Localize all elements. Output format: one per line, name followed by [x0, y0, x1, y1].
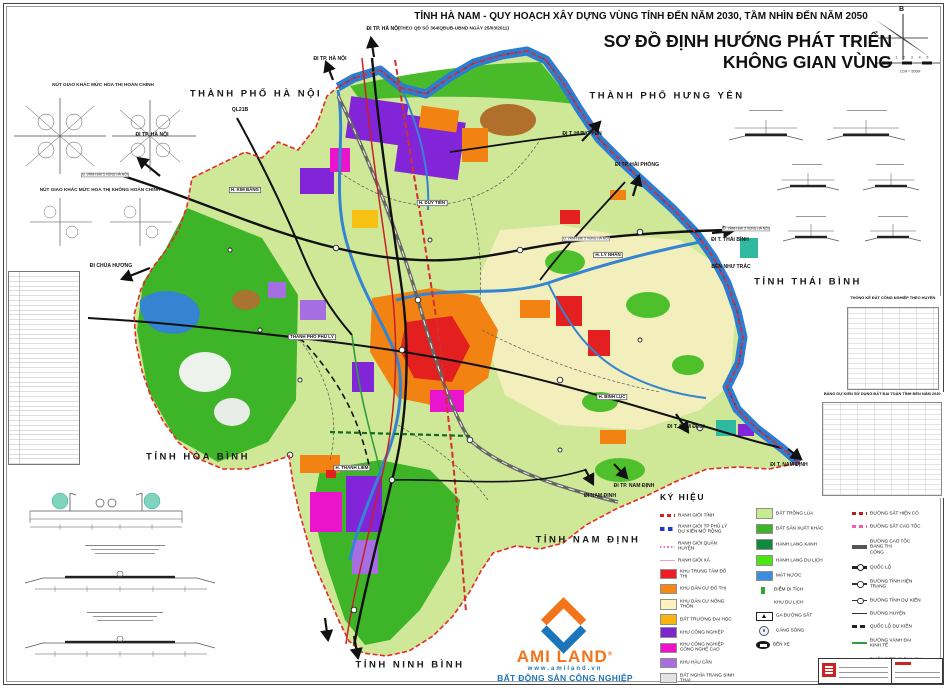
legend-item: RANH GIỚI XÃ — [660, 557, 756, 564]
legend-swatch-thin — [852, 613, 867, 614]
legend-item: GA ĐƯỜNG SẮT — [756, 612, 854, 621]
direction-label: ĐI T. THÁI BÌNH — [711, 237, 749, 242]
scale-tick: 0 — [888, 56, 890, 60]
legend-label: QUỐC LỘ DỰ KIẾN — [870, 624, 923, 629]
legend-item: ĐƯỜNG SẮT HIỆN CÓ — [852, 510, 944, 517]
direction-label: ĐI NAM ĐỊNH — [584, 493, 616, 498]
stamp-logo-icon — [822, 663, 836, 677]
legend-item: HÀNH LANG DU LỊCH — [756, 555, 854, 566]
map-name-line1: SƠ ĐỒ ĐỊNH HƯỚNG PHÁT TRIỂN — [500, 31, 892, 52]
legend-label: CẢNG SÔNG — [776, 628, 832, 633]
legend-column-zones: RANH GIỚI TỈNHRANH GIỚI TP PHỦ LÝ DỰ KIẾ… — [660, 512, 756, 688]
scale-tick: 5 — [926, 56, 928, 60]
legend-item: QUỐC LỘ DỰ KIẾN — [852, 623, 944, 630]
legend-item: ĐIỂM DI TÍCH — [756, 586, 854, 593]
legend-swatch-fill — [660, 584, 677, 595]
legend-swatch-fill — [756, 539, 773, 550]
title-stamp-block — [818, 658, 943, 684]
legend-label: ĐƯỜNG TỈNH HIỆN TRẠNG — [870, 579, 923, 590]
legend-label: ĐƯỜNG TỈNH DỰ KIẾN — [870, 598, 923, 603]
legend-label: KHU CÔNG NGHIỆP — [680, 630, 735, 635]
legend-label: KHU DÂN CƯ ĐÔ THỊ — [680, 586, 735, 591]
direction-label: BẾN NHƯ TRÁC — [711, 264, 750, 269]
stamp-text-lines — [839, 664, 888, 678]
legend-label: BẾN XE — [773, 642, 831, 647]
legend-item: ĐƯỜNG TỈNH DỰ KIẾN — [852, 597, 944, 604]
legend-item: RANH GIỚI TỈNH — [660, 512, 756, 519]
legend-label: ĐẤT TRỒNG LÚA — [776, 511, 832, 516]
stamp-left-cell — [819, 659, 892, 683]
legend-item: ĐẤT TRƯỜNG ĐẠI HỌC — [660, 614, 756, 625]
legend-label: KHU CÔNG NGHIỆP CÔNG NGHỆ CAO — [680, 642, 735, 653]
direction-label: ĐI T. HƯNG YÊN — [562, 131, 601, 136]
direction-label: ĐI TP. HÀ NỘI — [366, 26, 399, 31]
legend-label: ĐẤT TRƯỜNG ĐẠI HỌC — [680, 617, 735, 622]
legend-swatch-fill — [660, 569, 677, 580]
scale-tick: 3 — [911, 56, 913, 60]
legend-swatch-linecircle — [852, 566, 867, 569]
legend-swatch-dash — [852, 525, 867, 528]
legend-swatch-dash — [852, 512, 867, 515]
district-label: H. BÌNH LỤC — [597, 394, 628, 400]
legend-item: RANH GIỚI TP PHỦ LÝ DỰ KIẾN MỞ RỘNG — [660, 522, 756, 537]
legend-swatch-fill — [660, 658, 677, 669]
legend-item: KHU TRUNG TÂM ĐÔ THỊ — [660, 567, 756, 582]
legend-swatch-station — [756, 612, 773, 621]
province-label: THÀNH PHỐ HƯNG YÊN — [589, 91, 744, 102]
direction-label: ĐI TP. HÀ NỘI — [135, 132, 168, 137]
road-cross-sections-left — [25, 493, 215, 657]
legend-item: CẢNG SÔNG — [756, 626, 854, 636]
province-label: TỈNH HÒA BÌNH — [146, 452, 250, 463]
legend-swatch-thick — [852, 545, 867, 549]
legend-title: KÝ HIỆU — [660, 492, 944, 502]
legend-item: ĐƯỜNG CAO TỐC ĐANG THI CÔNG — [852, 536, 944, 558]
stamp-red-mark — [895, 662, 911, 665]
legend-swatch-dash — [660, 514, 675, 517]
legend-label: KHU TRUNG TÂM ĐÔ THỊ — [680, 569, 735, 580]
legend-item: RANH GIỚI QUẬN HUYỆN — [660, 539, 756, 554]
legend-label: ĐƯỜNG SẮT HIỆN CÓ — [870, 511, 923, 516]
amiland-tagline: BẤT ĐỘNG SẢN CÔNG NGHIỆP — [472, 673, 658, 683]
legend-swatch-dots — [660, 546, 675, 548]
legend-item: ĐƯỜNG HUYỆN — [852, 610, 944, 617]
landuse-table: BẢNG DỰ KIẾN SỬ DỤNG ĐẤT ĐAI TOÀN TỈNH Đ… — [820, 392, 944, 498]
scale-note: 1CM = 500M — [892, 70, 928, 74]
note-list-table — [8, 271, 80, 465]
legend-swatch-fill — [756, 508, 773, 519]
legend-label: RANH GIỚI XÃ — [678, 558, 734, 563]
legend-swatch-thin — [660, 560, 675, 561]
legend-item: MẶT NƯỚC — [756, 571, 854, 582]
direction-label: ĐI CHÙA HƯƠNG — [90, 263, 132, 268]
legend-item: KHU CÔNG NGHIỆP — [660, 627, 756, 638]
direction-label: QL21B — [232, 107, 248, 112]
legend-swatch-squares — [660, 527, 675, 531]
province-label: TỈNH NINH BÌNH — [356, 660, 465, 671]
district-label: H. KIM BẢNG — [229, 187, 261, 193]
legend-swatch-fill — [756, 524, 773, 535]
registered-mark: ® — [608, 651, 613, 657]
legend-swatch-bus — [756, 641, 770, 650]
legend-item: KHU DÂN CƯ ĐÔ THỊ — [660, 584, 756, 595]
scale-tick: 4 — [919, 56, 921, 60]
legend-column-land: ĐẤT TRỒNG LÚAĐẤT SẢN XUẤT KHÁCHÀNH LANG … — [756, 508, 854, 655]
direction-label: ĐI T. NAM ĐỊNH — [667, 424, 704, 429]
direction-label: ĐI T. NAM ĐỊNH — [770, 462, 807, 467]
legend-item: KHU HẬU CẦN — [660, 658, 756, 669]
stamp-right-cell — [892, 659, 942, 683]
legend-label: ĐƯỜNG CAO TỐC ĐANG THI CÔNG — [870, 539, 923, 555]
map-name-line2: KHÔNG GIAN VÙNG — [500, 52, 892, 73]
interchange-diagram-full — [14, 98, 196, 174]
legend-swatch-none — [756, 602, 771, 603]
legend-item: KHU DU LỊCH — [756, 599, 854, 606]
legend-swatch-fill — [660, 599, 677, 610]
legend-column-roads: ĐƯỜNG SẮT HIỆN CÓĐƯỜNG SẮT CAO TỐCĐƯỜNG … — [852, 510, 944, 682]
legend-swatch-linecircle-thin — [852, 600, 867, 601]
district-label: H. LÝ NHÂN — [593, 252, 622, 258]
legend-item: QUỐC LỘ — [852, 564, 944, 571]
legend-label: RANH GIỚI TỈNH — [678, 513, 734, 518]
legend-swatch-port — [759, 626, 769, 636]
legend-item: ĐẤT TRỒNG LÚA — [756, 508, 854, 519]
legend-item: ĐƯỜNG VÀNH ĐAI KINH TẾ — [852, 636, 944, 651]
interchange-diagram-partial — [30, 198, 172, 246]
legend-swatch-fill — [660, 614, 677, 625]
road-ribbon-label: Đ. VÀNH ĐAI 5 VÙNG HÀ NỘI — [722, 227, 770, 231]
legend-swatch-fill — [660, 673, 677, 684]
direction-label: ĐI TP. NAM ĐỊNH — [614, 483, 655, 488]
province-label: THÀNH PHỐ HÀ NỘI — [190, 89, 322, 100]
legend-label: QUỐC LỘ — [870, 565, 923, 570]
sheet-title: TỈNH HÀ NAM - QUY HOẠCH XÂY DỰNG VÙNG TỈ… — [392, 11, 890, 22]
legend-item: KHU DÂN CƯ NÔNG THÔN — [660, 597, 756, 612]
industry-table: THỐNG KÊ ĐẤT CÔNG NGHIỆP THEO HUYỆN — [845, 296, 941, 392]
legend-swatch-line2 — [852, 642, 867, 644]
legend-label: MẶT NƯỚC — [776, 573, 832, 578]
legend-label: HÀNH LANG DU LỊCH — [776, 558, 832, 563]
legend-item: HÀNH LANG XANH — [756, 539, 854, 550]
legend-item: BẾN XE — [756, 641, 854, 650]
road-cross-sections-right — [729, 110, 921, 241]
road-ribbon-label: Đ. VÀNH ĐAI 5 VÙNG HÀ NỘI — [81, 173, 129, 177]
legend-swatch-dashthick — [852, 625, 867, 628]
legend-swatch-fill — [756, 571, 773, 582]
province-label: TỈNH NAM ĐỊNH — [536, 535, 641, 546]
legend-swatch-smallfill — [761, 587, 765, 594]
legend-label: GA ĐƯỜNG SẮT — [776, 613, 832, 618]
landuse-table-title: BẢNG DỰ KIẾN SỬ DỤNG ĐẤT ĐAI TOÀN TỈNH Đ… — [822, 392, 941, 397]
legend-swatch-fill — [756, 555, 773, 566]
province-label: TỈNH THÁI BÌNH — [754, 277, 862, 288]
district-label: H. THANH LIÊM — [334, 465, 371, 471]
legend-label: KHU HẬU CẦN — [680, 660, 735, 665]
legend-label: ĐIỂM DI TÍCH — [774, 587, 832, 592]
industry-table-title: THỐNG KÊ ĐẤT CÔNG NGHIỆP THEO HUYỆN — [847, 296, 939, 301]
legend-label: ĐƯỜNG SẮT CAO TỐC — [870, 524, 923, 529]
legend-item: ĐẤT NGHĨA TRANG SINH THÁI — [660, 671, 756, 686]
district-label: THÀNH PHỐ PHỦ LÝ — [288, 334, 336, 340]
industry-table-grid — [847, 307, 939, 390]
district-label: H. DUY TIÊN — [417, 200, 447, 206]
legend-label: KHU DU LỊCH — [774, 600, 832, 605]
legend-item: KHU CÔNG NGHIỆP CÔNG NGHỆ CAO — [660, 640, 756, 655]
legend-item: ĐƯỜNG SẮT CAO TỐC — [852, 523, 944, 530]
legend-swatch-fill — [660, 643, 677, 654]
stamp-right-lines — [895, 668, 940, 678]
legend-swatch-fill — [660, 627, 677, 638]
legend-label: RANH GIỚI QUẬN HUYỆN — [678, 541, 734, 552]
legend-label: ĐẤT SẢN XUẤT KHÁC — [776, 526, 832, 531]
scale-ticks: 012345 — [888, 56, 929, 60]
scale-tick: 1 — [895, 56, 897, 60]
direction-label: ĐI TP. HÀ NỘI — [313, 56, 346, 61]
legend-label: RANH GIỚI TP PHỦ LÝ DỰ KIẾN MỞ RỘNG — [678, 524, 734, 535]
interchange-partial-title: NÚT GIAO KHÁC MỨC HOA THỊ KHÔNG HOÀN CHỈ… — [40, 187, 160, 192]
amiland-watermark: AMI LAND® www.amiland.vn BẤT ĐỘNG SẢN CÔ… — [472, 596, 658, 683]
legend-label: ĐƯỜNG HUYỆN — [870, 611, 923, 616]
legend-item: ĐẤT SẢN XUẤT KHÁC — [756, 524, 854, 535]
legend-item: ĐƯỜNG TỈNH HIỆN TRẠNG — [852, 577, 944, 592]
legend-label: HÀNH LANG XANH — [776, 542, 832, 547]
direction-label: ĐI TP. HẢI PHÒNG — [615, 162, 659, 167]
interchange-full-title: NÚT GIAO KHÁC MỨC HOA THỊ HOÀN CHỈNH — [52, 82, 154, 87]
amiland-name: AMI LAND® — [472, 648, 658, 665]
plan-sheet: TỈNH HÀ NAM - QUY HOẠCH XÂY DỰNG VÙNG TỈ… — [0, 0, 947, 688]
legend-label: ĐẤT NGHĨA TRANG SINH THÁI — [680, 673, 735, 684]
scale-tick: 2 — [903, 56, 905, 60]
legend-label: KHU DÂN CƯ NÔNG THÔN — [680, 599, 735, 610]
road-ribbon-label: Đ. VÀNH ĐAI 5 VÙNG HÀ NỘI — [562, 237, 610, 241]
north-label: B — [899, 6, 904, 13]
legend-swatch-linecircle-thin — [852, 583, 867, 584]
map-name: SƠ ĐỒ ĐỊNH HƯỚNG PHÁT TRIỂN KHÔNG GIAN V… — [500, 31, 892, 73]
amiland-website: www.amiland.vn — [472, 666, 658, 672]
legend-label: ĐƯỜNG VÀNH ĐAI KINH TẾ — [870, 638, 923, 649]
landuse-table-grid — [822, 402, 942, 496]
